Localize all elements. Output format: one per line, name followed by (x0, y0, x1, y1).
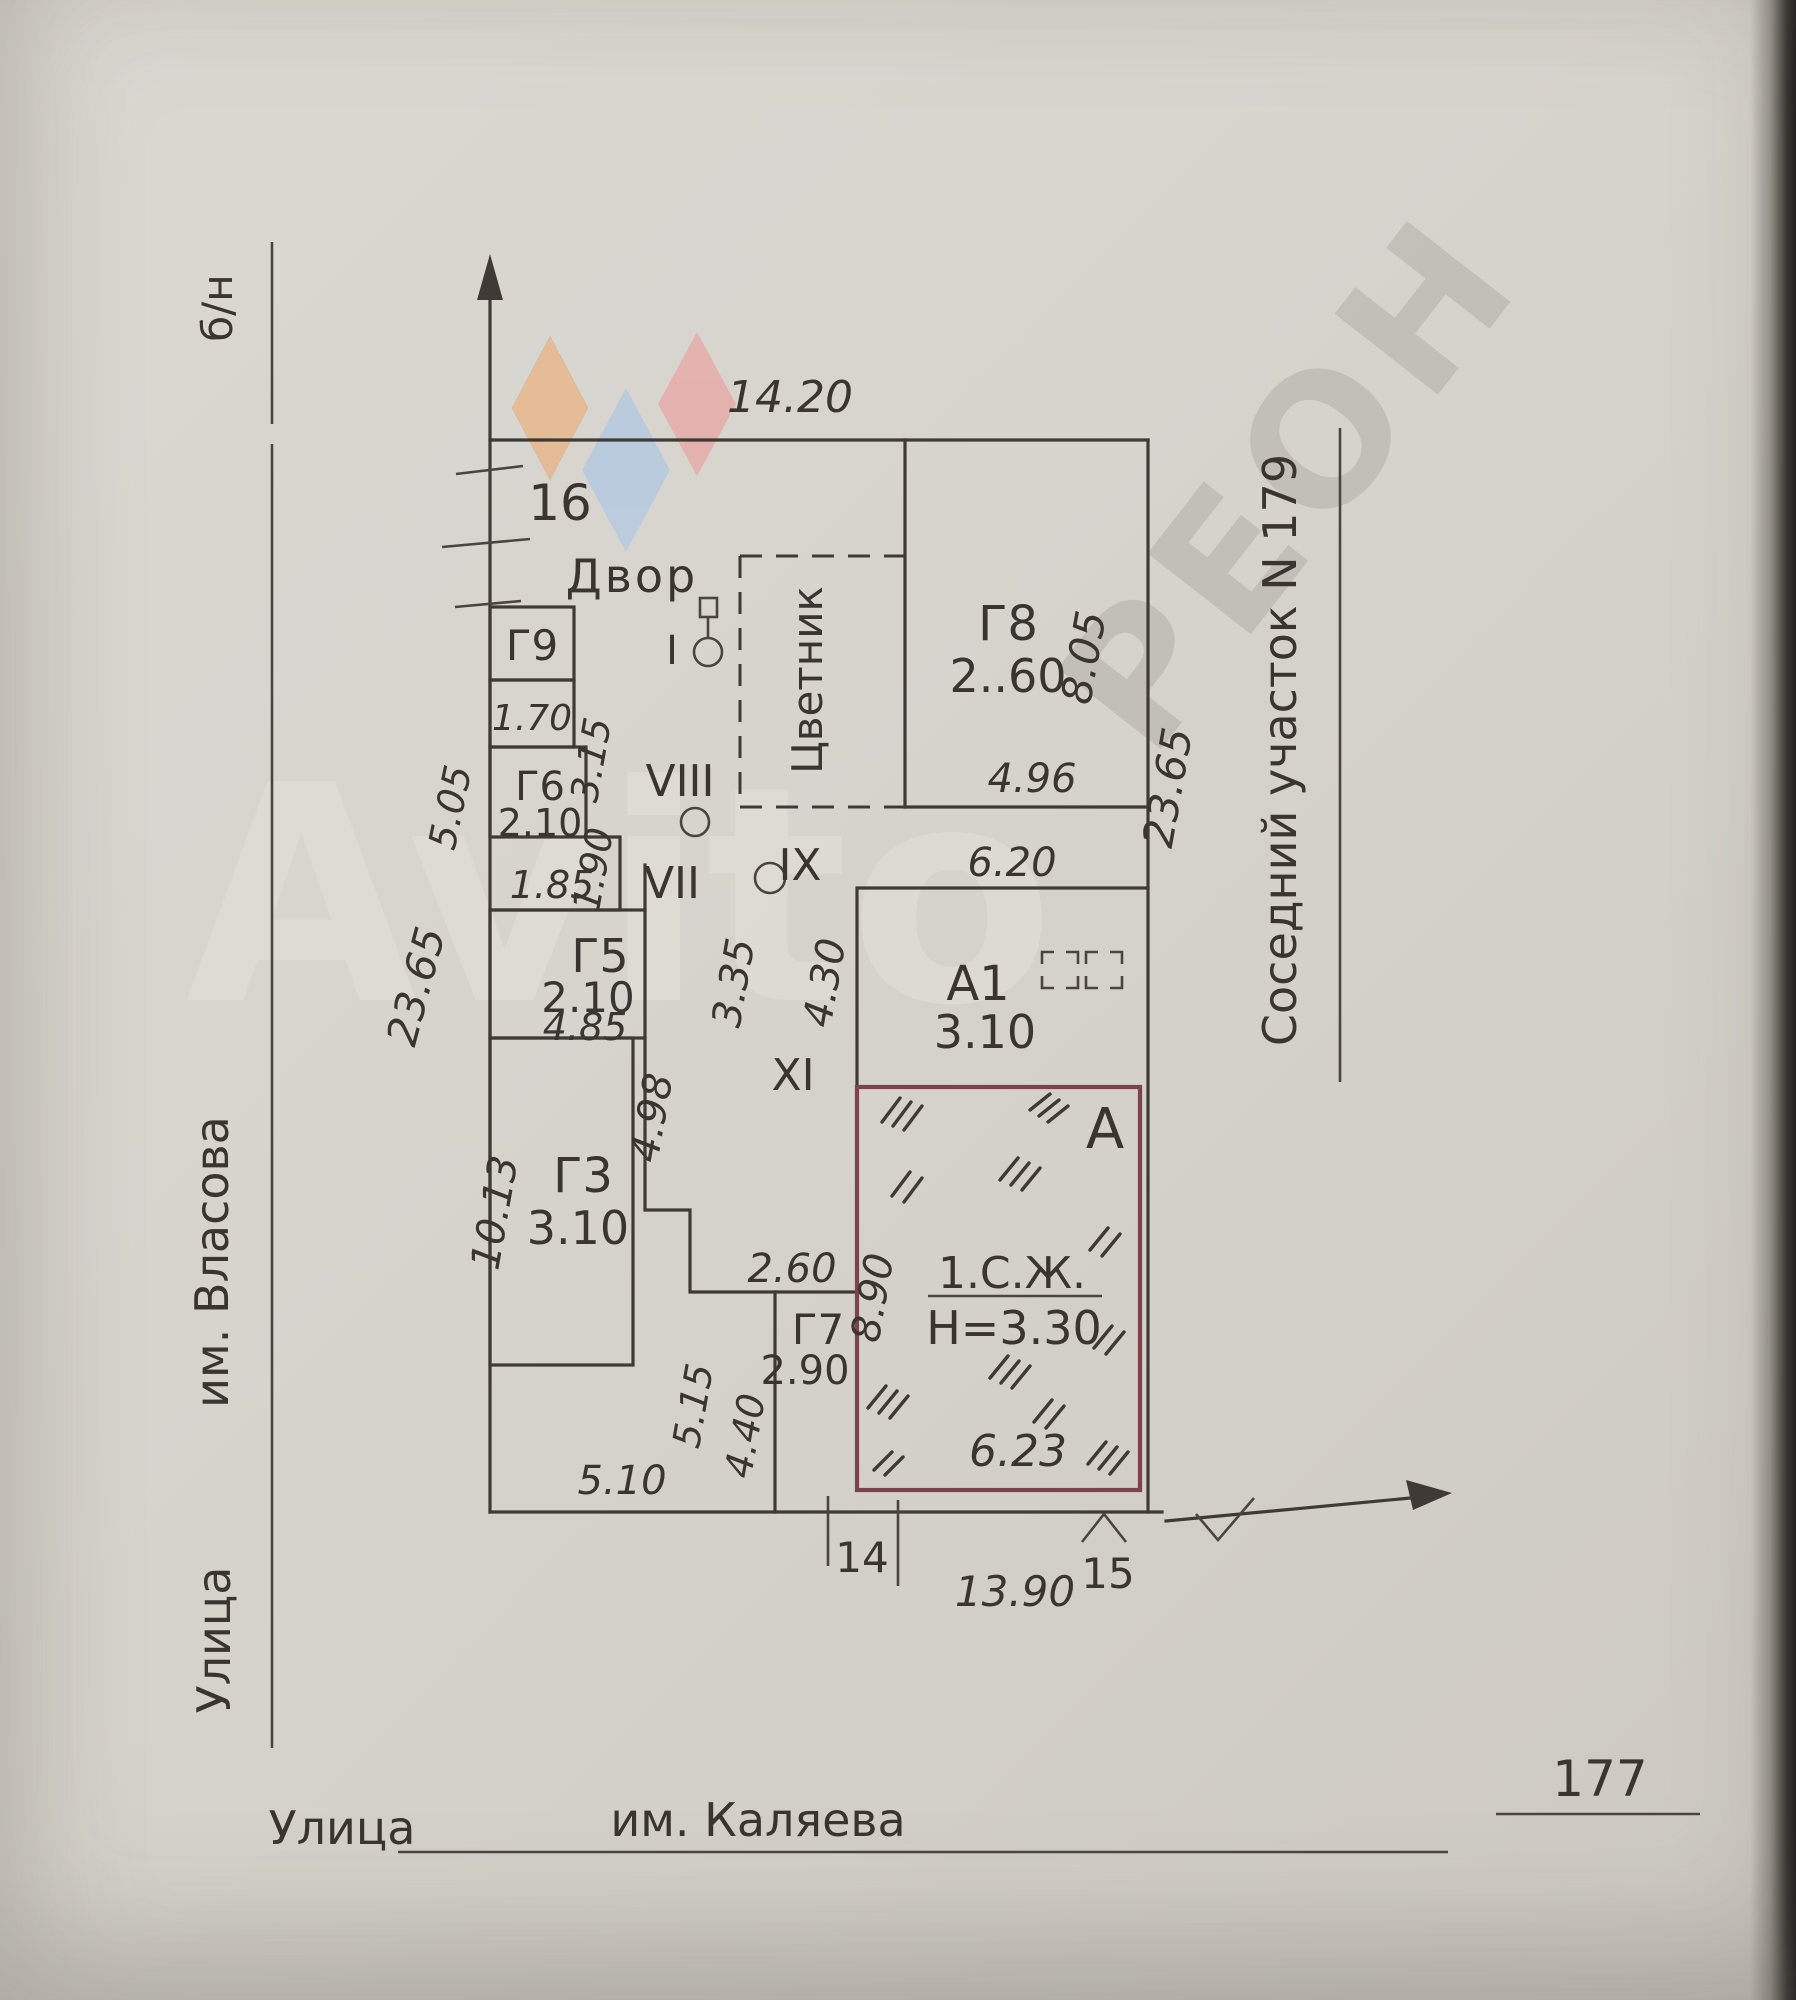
well-label: I (666, 628, 678, 674)
shed-g9-label: Г9 (506, 621, 558, 670)
bottom-street-lines (398, 1814, 1700, 1852)
corner-check-tick-icon (1196, 1498, 1254, 1540)
dim-4-40: 4.40 (716, 1390, 774, 1481)
point-14-label: 14 (835, 1533, 888, 1582)
shed-g3-dim2: 10.13 (463, 1152, 528, 1273)
house-a-dim: 6.23 (969, 1426, 1067, 1477)
shed-g8-label: Г8 (978, 596, 1038, 652)
point-15-caret-icon (1082, 1514, 1126, 1542)
site-plan-drawing: РЕОН Avito (0, 0, 1796, 2000)
dim-top-width: 14.20 (727, 372, 853, 423)
dim-4-98: 4.98 (622, 1070, 683, 1166)
room-vii-label: VII (644, 858, 700, 909)
scanned-site-plan: РЕОН Avito (0, 0, 1796, 2000)
ext-a1-dim: 3.10 (934, 1005, 1036, 1059)
point-16-label: 16 (528, 474, 592, 532)
street-direction-arrow (1166, 1480, 1452, 1521)
left-street-marker: б/н (193, 274, 242, 342)
shed-g3-label: Г3 (553, 1148, 613, 1204)
dim-1-85: 1.85 (510, 863, 595, 907)
dim-front-left: 5.10 (577, 1458, 666, 1504)
house-number: 177 (1552, 1750, 1647, 1808)
shed-g8-dim3: 4.96 (987, 756, 1076, 802)
room-viii-label: VIII (645, 756, 714, 807)
shed-g5-dim2: 4.85 (543, 1005, 628, 1049)
shed-g9-dim: 1.70 (492, 698, 572, 739)
point-15-label: 15 (1081, 1549, 1134, 1598)
photo-edge-shadow (1750, 0, 1796, 2000)
room-ix-label: IX (778, 840, 821, 891)
shed-g6-dim: 2.10 (498, 801, 583, 845)
shed-g7-dim: 2.90 (760, 1348, 849, 1394)
dim-8-90: 8.90 (843, 1250, 904, 1346)
dim-front-width: 13.90 (955, 1567, 1075, 1616)
bottom-street-name: им. Каляева (610, 1793, 905, 1847)
bottom-street-prefix: Улица (269, 1801, 416, 1855)
well-lamp-icon (694, 598, 722, 666)
left-street-prefix: Улица (187, 1567, 241, 1714)
shed-g3-dim1: 3.10 (527, 1201, 629, 1255)
room-xi-label: XI (771, 1050, 814, 1101)
flowerbed-label: Цветник (783, 586, 832, 774)
dim-2-60: 2.60 (747, 1246, 836, 1292)
north-arrow-icon (477, 254, 503, 300)
ext-a1-label: А1 (946, 956, 1009, 1012)
yard-label: Двор (566, 549, 698, 603)
left-street-name: им. Власова (185, 1116, 239, 1408)
shed-g7-label: Г7 (792, 1305, 844, 1354)
shed-g8-dim1: 2..60 (949, 649, 1066, 703)
neighbor-plot-label: Соседний участок N 179 (1253, 454, 1307, 1046)
ext-a1-topdim: 6.20 (967, 840, 1056, 886)
dim-5-15: 5.15 (664, 1360, 722, 1451)
house-a-height: Н=3.30 (926, 1301, 1102, 1355)
house-a-label: А (1086, 1097, 1124, 1162)
house-a-use-label: 1.С.Ж. (938, 1248, 1086, 1299)
